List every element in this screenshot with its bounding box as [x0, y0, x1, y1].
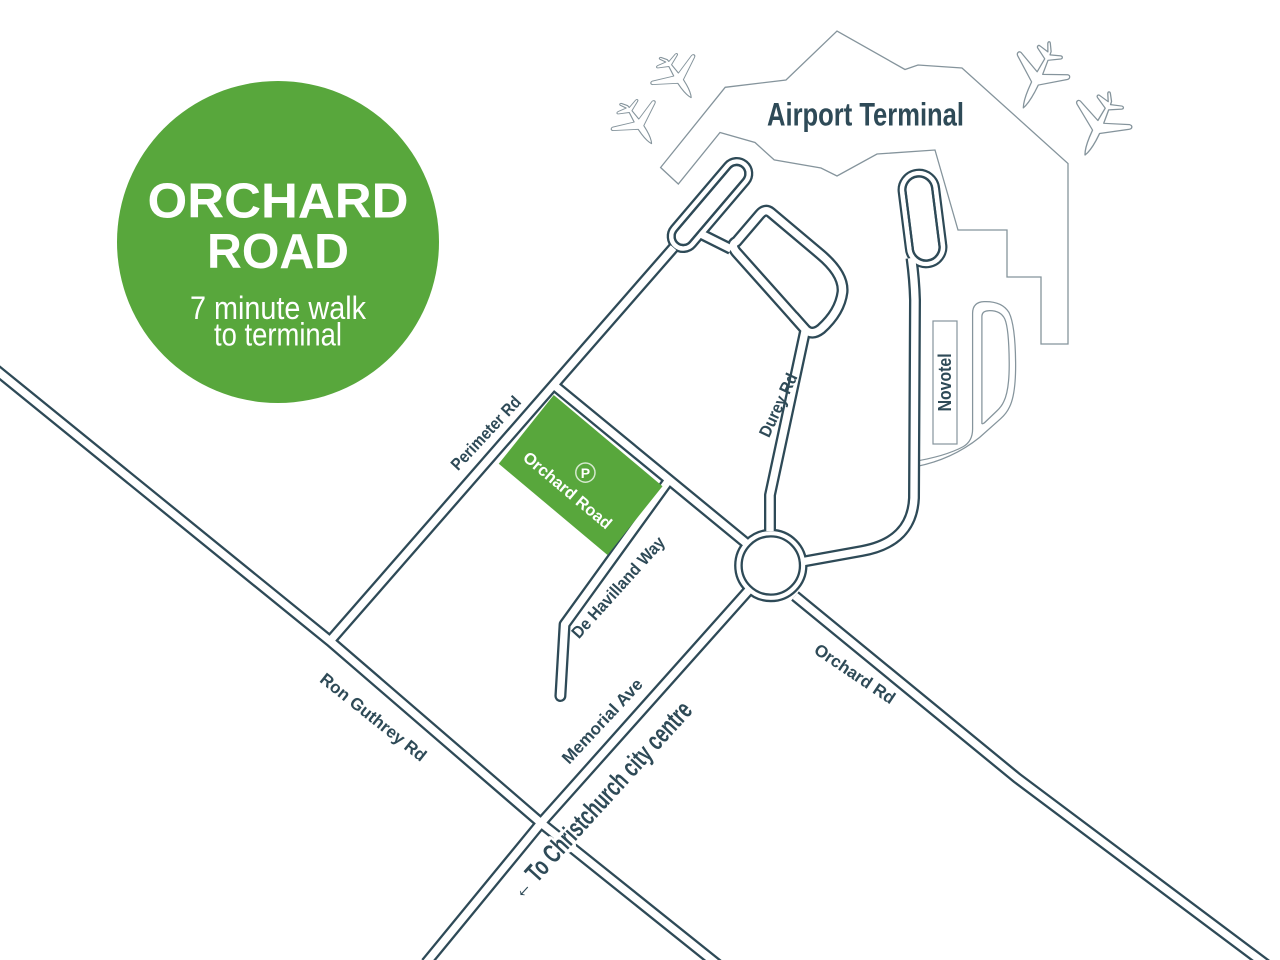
svg-text:to terminal: to terminal — [214, 317, 342, 353]
svg-text:Novotel: Novotel — [935, 353, 955, 411]
svg-text:P: P — [581, 465, 590, 481]
svg-text:ROAD: ROAD — [207, 225, 349, 279]
svg-text:Airport Terminal: Airport Terminal — [767, 97, 964, 133]
svg-text:ORCHARD: ORCHARD — [148, 175, 409, 229]
